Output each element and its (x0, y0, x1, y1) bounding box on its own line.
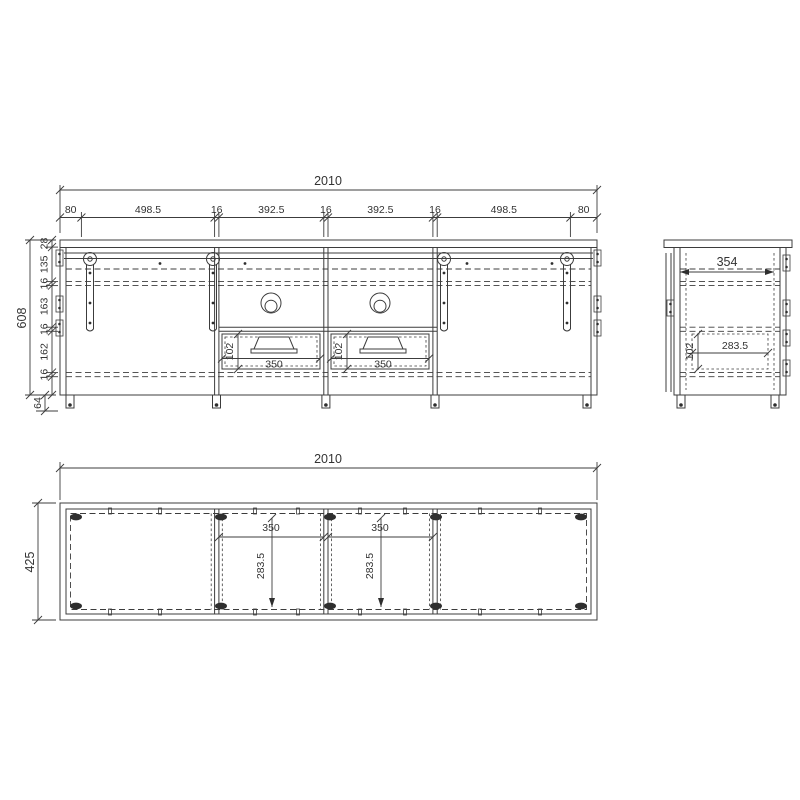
furniture-technical-drawing: 2010 80 498.5 16 392.5 16 392.5 16 498 (0, 0, 800, 800)
drawer-height-label: 102 (333, 343, 345, 361)
front-drawer-right: 102 350 (327, 330, 433, 373)
front-chain-392-right: 392.5 (367, 204, 393, 216)
front-chain-498-left: 498.5 (135, 204, 161, 216)
front-drawer-left: 102 350 (218, 330, 324, 373)
foot-pad-icon (70, 514, 82, 521)
side-inner-depth-label: 354 (717, 255, 738, 269)
cable-grommet-icon (370, 293, 390, 313)
drawer-pull-icon (360, 337, 406, 353)
barn-door-roller-icon (561, 253, 574, 332)
drawer-height-label: 102 (224, 343, 236, 361)
foot-pad-icon (430, 514, 442, 521)
foot-icon (771, 395, 779, 408)
front-chain-16-f: 16 (39, 369, 51, 381)
barn-door-roller-icon (84, 253, 97, 332)
bottom-compartment-right: 350 283.5 (324, 514, 437, 607)
bottom-compartment-left: 350 283.5 (215, 514, 328, 607)
foot-pad-icon (215, 603, 227, 610)
front-dim-width-chain: 80 498.5 16 392.5 16 392.5 16 498.5 80 (56, 204, 601, 237)
foot-icon (66, 395, 74, 408)
front-chain-28: 28 (39, 238, 51, 250)
bottom-view: 2010 425 (23, 452, 601, 624)
front-chain-16-c: 16 (429, 204, 441, 216)
drawer-pull-icon (251, 337, 297, 353)
drawer-width-label: 350 (374, 359, 392, 371)
front-chain-162: 162 (39, 343, 51, 361)
foot-icon (213, 395, 221, 408)
side-dim-inner-depth: 354 (680, 255, 774, 275)
bottom-compartment-depth-label: 283.5 (255, 553, 267, 579)
front-chain-135: 135 (39, 255, 51, 273)
front-chain-392-left: 392.5 (258, 204, 284, 216)
barn-door-roller-icon (207, 253, 220, 332)
front-total-width-label: 2010 (314, 174, 342, 188)
front-chain-16-a: 16 (211, 204, 223, 216)
foot-pad-icon (575, 603, 587, 610)
foot-pad-icon (215, 514, 227, 521)
front-dim-height-chain: 28 135 16 163 16 162 16 (39, 236, 59, 399)
front-cabinet-body (60, 240, 597, 395)
foot-pad-icon (324, 514, 336, 521)
bottom-compartment-width-label: 350 (371, 522, 389, 534)
front-chain-16-b: 16 (320, 204, 332, 216)
foot-icon (322, 395, 330, 408)
front-chain-16-e: 16 (39, 323, 51, 335)
side-view: 354 102 283.5 (664, 240, 792, 408)
foot-icon (583, 395, 591, 408)
bottom-dim-total-depth: 425 (23, 499, 56, 624)
bottom-compartment-width-label: 350 (262, 522, 280, 534)
foot-pad-icon (324, 603, 336, 610)
front-chain-80-right: 80 (578, 204, 590, 216)
front-feet-height-label: 64 (32, 397, 44, 409)
side-drawer-depth-label: 283.5 (722, 340, 748, 352)
bottom-compartment-depth-label: 283.5 (364, 553, 376, 579)
front-chain-163: 163 (39, 297, 51, 315)
bottom-dim-total-width: 2010 (56, 452, 601, 500)
bottom-total-depth-label: 425 (23, 552, 37, 573)
bottom-total-width-label: 2010 (314, 452, 342, 466)
drawing-page: 2010 80 498.5 16 392.5 16 392.5 16 498 (0, 0, 800, 800)
front-chain-16-d: 16 (39, 278, 51, 290)
cable-grommet-icon (261, 293, 281, 313)
barn-door-roller-icon (438, 253, 451, 332)
front-view: 2010 80 498.5 16 392.5 16 392.5 16 498 (15, 174, 601, 415)
foot-icon (431, 395, 439, 408)
front-chain-80-left: 80 (65, 204, 77, 216)
side-drawer: 102 283.5 (684, 330, 772, 373)
foot-icon (677, 395, 685, 408)
front-chain-498-right: 498.5 (491, 204, 517, 216)
bottom-carcass (60, 503, 597, 620)
foot-pad-icon (70, 603, 82, 610)
foot-pad-icon (430, 603, 442, 610)
front-total-height-label: 608 (15, 308, 29, 329)
drawer-width-label: 350 (265, 359, 283, 371)
foot-pad-icon (575, 514, 587, 521)
